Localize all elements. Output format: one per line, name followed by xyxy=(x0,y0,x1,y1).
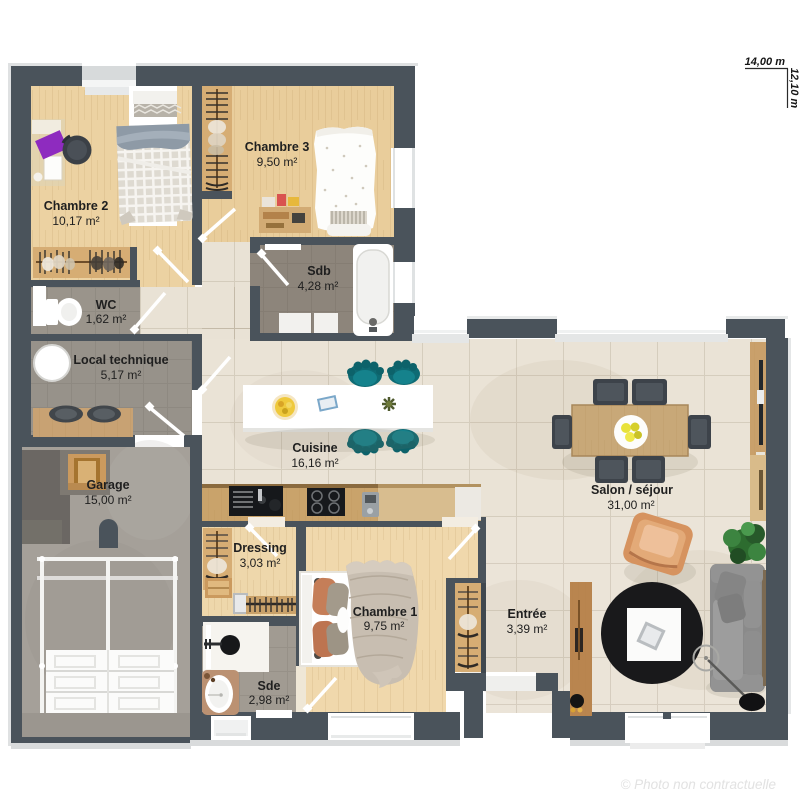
svg-text:Salon / séjour: Salon / séjour xyxy=(591,483,673,497)
svg-text:Cuisine: Cuisine xyxy=(292,441,337,455)
svg-text:Local technique: Local technique xyxy=(73,353,168,367)
svg-text:15,00 m²: 15,00 m² xyxy=(84,493,131,507)
svg-text:14,00 m: 14,00 m xyxy=(745,56,786,68)
svg-text:WC: WC xyxy=(96,298,117,312)
svg-text:5,17 m²: 5,17 m² xyxy=(101,368,142,382)
svg-text:Chambre 2: Chambre 2 xyxy=(44,199,109,213)
svg-text:3,03 m²: 3,03 m² xyxy=(240,556,281,570)
svg-text:9,50 m²: 9,50 m² xyxy=(257,155,298,169)
svg-text:2,98 m²: 2,98 m² xyxy=(249,693,290,707)
svg-text:Entrée: Entrée xyxy=(508,607,547,621)
svg-text:Dressing: Dressing xyxy=(233,541,287,555)
svg-text:Sde: Sde xyxy=(258,679,281,693)
svg-text:9,75 m²: 9,75 m² xyxy=(364,619,405,633)
svg-text:31,00 m²: 31,00 m² xyxy=(607,498,654,512)
svg-text:© Photo non contractuelle: © Photo non contractuelle xyxy=(620,777,776,792)
svg-text:10,17 m²: 10,17 m² xyxy=(52,214,99,228)
svg-text:3,39 m²: 3,39 m² xyxy=(507,622,548,636)
svg-text:Garage: Garage xyxy=(86,478,129,492)
svg-text:12,10 m: 12,10 m xyxy=(788,68,800,109)
svg-text:16,16 m²: 16,16 m² xyxy=(291,456,338,470)
svg-text:4,28 m²: 4,28 m² xyxy=(298,279,339,293)
svg-text:Chambre 3: Chambre 3 xyxy=(245,140,310,154)
svg-text:Sdb: Sdb xyxy=(307,264,331,278)
svg-text:Chambre 1: Chambre 1 xyxy=(353,605,418,619)
svg-text:1,62 m²: 1,62 m² xyxy=(86,312,127,326)
